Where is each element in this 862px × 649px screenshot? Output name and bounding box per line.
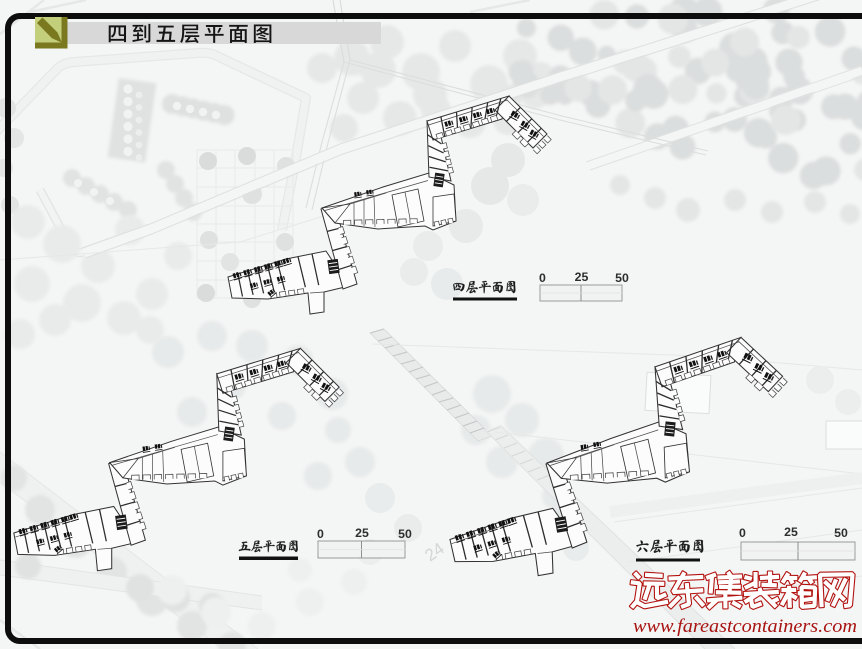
svg-text:25: 25	[575, 270, 589, 284]
svg-text:50: 50	[398, 527, 412, 541]
svg-text:www.fareastcontainers.com: www.fareastcontainers.com	[633, 617, 857, 637]
svg-text:0: 0	[539, 271, 546, 285]
svg-text:25: 25	[355, 526, 369, 540]
svg-text:50: 50	[615, 271, 629, 285]
svg-text:0: 0	[317, 527, 324, 541]
svg-text:0: 0	[739, 526, 746, 540]
svg-text:25: 25	[784, 525, 798, 539]
svg-text:50: 50	[834, 526, 848, 540]
